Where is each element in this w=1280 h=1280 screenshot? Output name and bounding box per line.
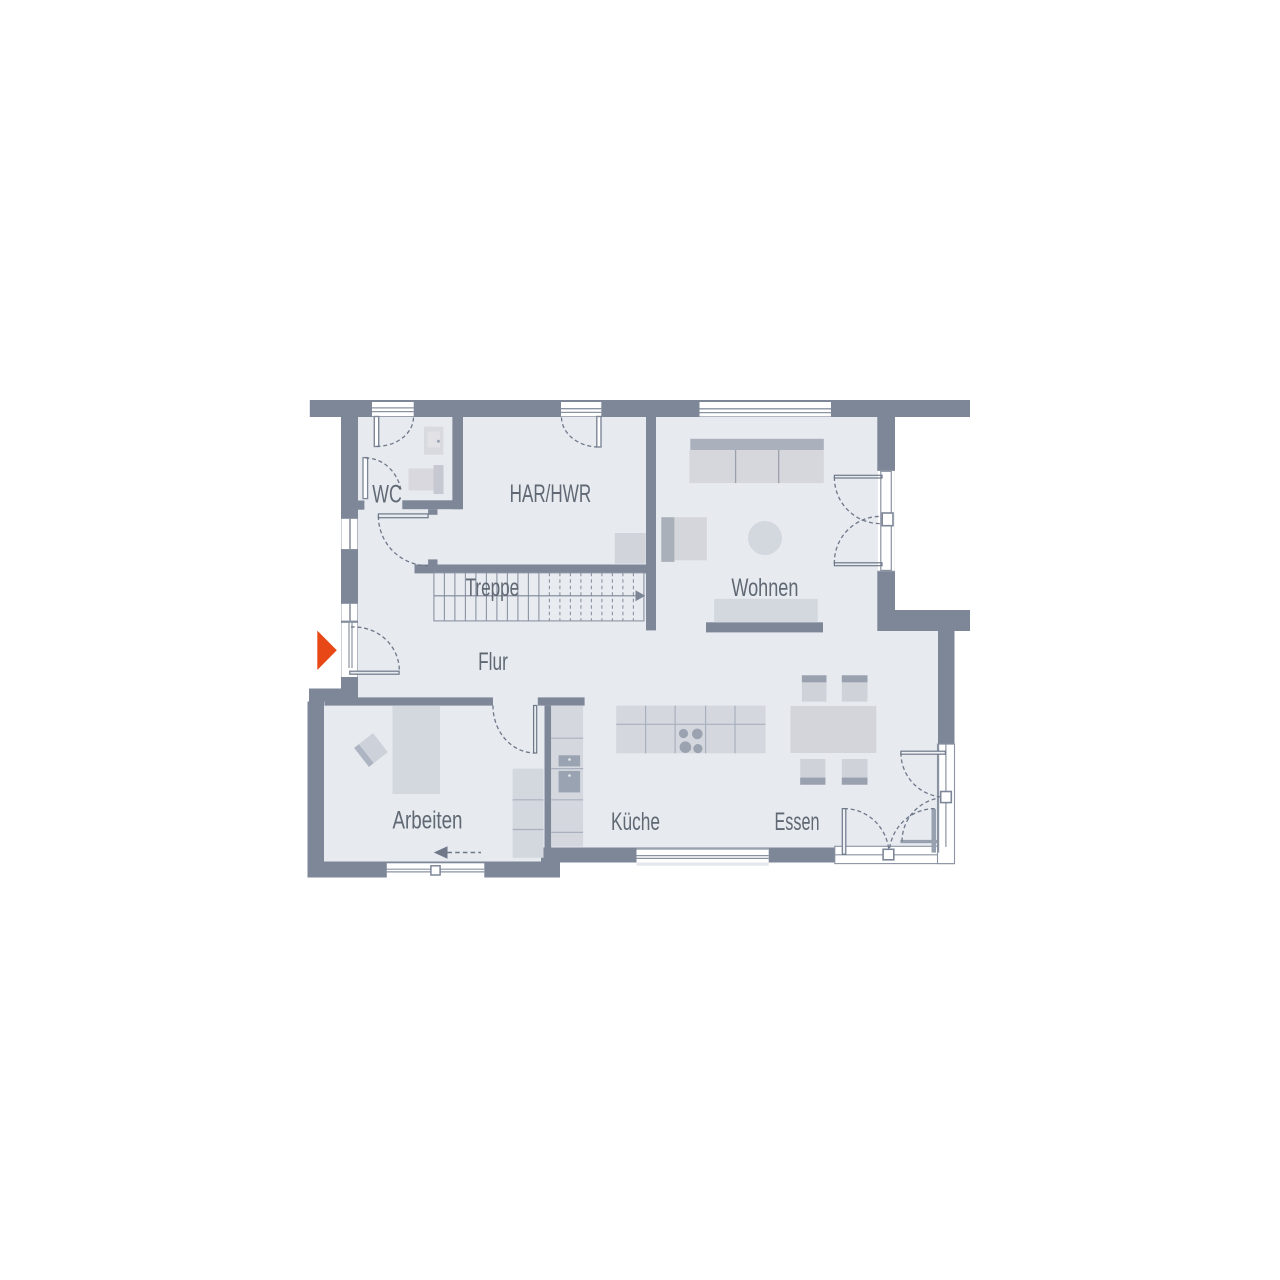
- svg-text:Essen: Essen: [775, 808, 820, 836]
- svg-text:WC: WC: [372, 481, 402, 509]
- svg-text:Küche: Küche: [611, 808, 660, 836]
- svg-text:HAR/HWR: HAR/HWR: [510, 480, 592, 508]
- svg-text:Treppe: Treppe: [466, 574, 520, 602]
- svg-text:Wohnen: Wohnen: [731, 574, 798, 602]
- svg-text:Arbeiten: Arbeiten: [393, 807, 463, 835]
- svg-text:Flur: Flur: [478, 648, 508, 676]
